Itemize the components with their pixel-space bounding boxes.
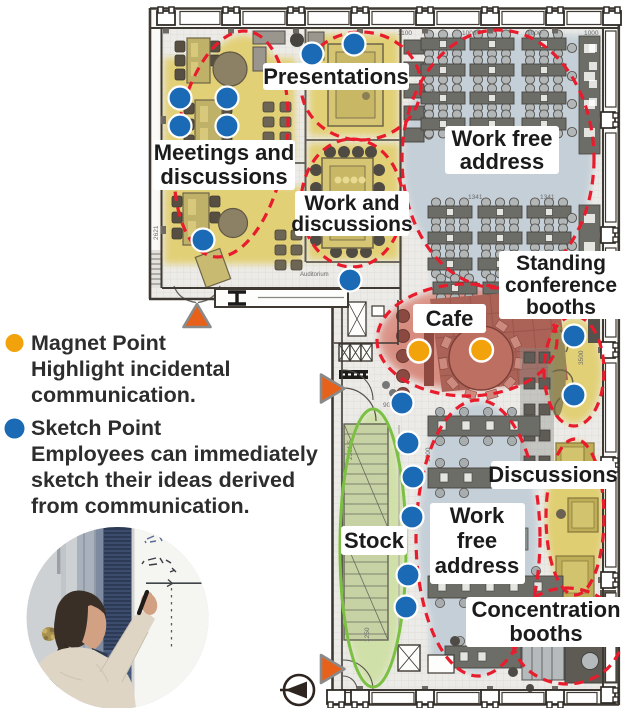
svg-text:600: 600 bbox=[430, 89, 437, 100]
svg-text:booths: booths bbox=[526, 296, 596, 319]
svg-text:Cafe: Cafe bbox=[426, 306, 474, 331]
svg-text:Employees can immediately: Employees can immediately bbox=[31, 442, 318, 466]
svg-text:address: address bbox=[460, 149, 544, 174]
svg-text:Work and: Work and bbox=[304, 192, 399, 215]
svg-text:discussions: discussions bbox=[160, 164, 287, 189]
svg-text:Presentations: Presentations bbox=[263, 64, 409, 89]
svg-text:Highlight incidental: Highlight incidental bbox=[31, 357, 230, 381]
svg-text:sketch their ideas derived: sketch their ideas derived bbox=[31, 468, 295, 492]
svg-text:Auditorium: Auditorium bbox=[300, 272, 329, 278]
svg-text:Work free: Work free bbox=[451, 126, 552, 151]
svg-text:communication.: communication. bbox=[31, 383, 196, 407]
svg-text:booths: booths bbox=[509, 621, 582, 646]
svg-text:conference: conference bbox=[505, 274, 617, 297]
svg-text:2621: 2621 bbox=[153, 225, 160, 240]
svg-text:Meetings and: Meetings and bbox=[154, 140, 295, 165]
svg-text:Concentration: Concentration bbox=[471, 597, 620, 622]
svg-text:1000: 1000 bbox=[584, 30, 599, 37]
svg-text:1341: 1341 bbox=[468, 194, 483, 201]
svg-text:discussions: discussions bbox=[291, 213, 412, 236]
svg-text:Discussions: Discussions bbox=[488, 462, 618, 487]
svg-text:from communication.: from communication. bbox=[31, 494, 250, 518]
svg-text:Magnet Point: Magnet Point bbox=[31, 331, 166, 355]
svg-text:3500: 3500 bbox=[578, 350, 585, 365]
svg-text:Sketch Point: Sketch Point bbox=[31, 416, 161, 440]
svg-text:Standing: Standing bbox=[516, 252, 606, 275]
svg-text:Stock: Stock bbox=[344, 528, 405, 553]
svg-text:Work: Work bbox=[450, 503, 505, 528]
svg-text:address: address bbox=[435, 553, 519, 578]
svg-text:1341: 1341 bbox=[540, 194, 555, 201]
svg-text:free: free bbox=[457, 528, 497, 553]
svg-text:1250: 1250 bbox=[364, 627, 371, 642]
